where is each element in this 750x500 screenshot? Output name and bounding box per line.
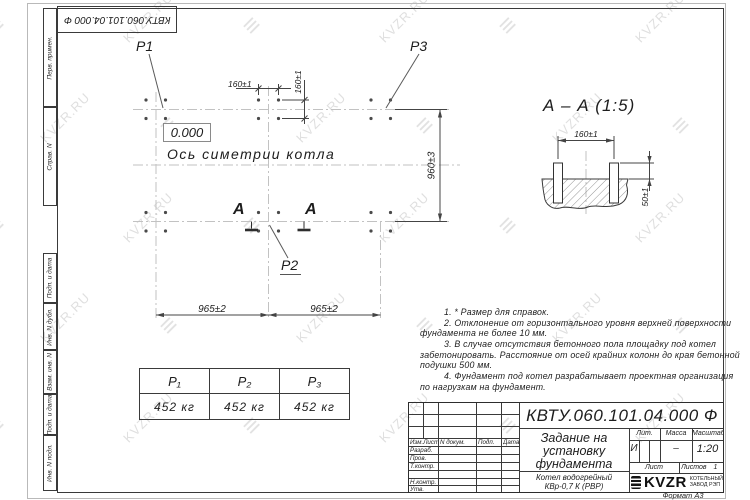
note-line: забетонировать. Расстояние от осей крайн… bbox=[420, 350, 750, 361]
format-label: Формат А3 bbox=[633, 491, 733, 500]
title-block: КВТУ.060.101.04.000 Ф Задание на установ… bbox=[408, 402, 724, 493]
section-letter-left: А bbox=[233, 201, 245, 219]
title-block-row-utv: Утв. bbox=[410, 486, 438, 493]
drawing-sheet-screenshot: ≡KVZR.RU≡KVZR.RU≡KVZR.RUKVZR.RU≡KVZR.RU≡… bbox=[0, 0, 750, 500]
title-block-row-nkontr: Н.контр. bbox=[410, 479, 438, 486]
load-table-value: 452 кг bbox=[279, 393, 350, 420]
title-block-listov-value: 1 bbox=[709, 464, 722, 473]
load-table-header: P₃ bbox=[279, 368, 350, 394]
title-block-lit-label: Лит. bbox=[629, 430, 660, 439]
load-table-value: 452 кг bbox=[209, 393, 280, 420]
note-line: 2. Отклонение от горизонтального уровня … bbox=[420, 318, 750, 329]
note-line: 1. * Размер для справок. bbox=[420, 307, 750, 318]
title-block-list-label: Лист bbox=[629, 464, 679, 473]
point-label-p2: P2 bbox=[280, 257, 301, 275]
anchor-bolt-left bbox=[554, 163, 563, 203]
title-block-product-line2: КВр-0,7 К (РВР) bbox=[521, 482, 627, 491]
dim-965-right: 965±2 bbox=[294, 304, 354, 315]
load-table-header: P₁ bbox=[139, 368, 210, 394]
section-dim-160: 160±1 bbox=[562, 129, 610, 139]
note-line: фундамента не более 10 мм. bbox=[420, 328, 750, 339]
elevation-mark: 0.000 bbox=[163, 123, 211, 142]
load-table-value: 452 кг bbox=[139, 393, 210, 420]
note-line: 4. Фундамент под котел разрабатывает про… bbox=[420, 371, 750, 382]
title-block-col-izm: Изм.Лист bbox=[410, 439, 438, 446]
title-block-row-razrab: Разраб. bbox=[410, 447, 438, 454]
anchor-bolt-right bbox=[610, 163, 619, 203]
title-block-scale-label: Масштаб bbox=[692, 430, 723, 439]
title-block-listov-label: Листов bbox=[681, 464, 709, 473]
title-block-doc-number: КВТУ.060.101.04.000 Ф bbox=[521, 403, 723, 428]
kvzr-logo-sub2: ЗАВОД РЭП bbox=[690, 483, 723, 489]
notes-block: 1. * Размер для справок. 2. Отклонение о… bbox=[420, 307, 750, 393]
title-block-col-data: Дата bbox=[503, 439, 519, 446]
note-line: по нагрузкам на фундамент. bbox=[420, 382, 750, 393]
load-table-header: P₂ bbox=[209, 368, 280, 394]
title-block-logo: KVZR КОТЕЛЬНЫЙ ЗАВОД РЭП bbox=[631, 473, 723, 492]
title-block-col-dokum: N докум. bbox=[440, 439, 476, 446]
section-view-geometry bbox=[542, 136, 654, 208]
load-table: P₁ P₂ P₃ 452 кг 452 кг 452 кг bbox=[139, 368, 350, 420]
title-block-row-prov: Пров. bbox=[410, 455, 438, 462]
note-line: подушки 500 мм. bbox=[420, 360, 750, 371]
title-block-mass-label: Масса bbox=[660, 430, 692, 439]
plan-dimensions bbox=[156, 80, 447, 317]
title-block-title-line2: установку bbox=[521, 444, 627, 457]
section-letter-right: А bbox=[305, 201, 317, 219]
section-view-title: А – А (1:5) bbox=[543, 96, 635, 116]
title-block-title-line3: фундамента bbox=[521, 457, 627, 470]
dim-965-left: 965±2 bbox=[182, 304, 242, 315]
title-block-product-line1: Котел водогрейный bbox=[521, 473, 627, 482]
kvzr-logo-text: KVZR bbox=[644, 474, 687, 491]
section-cut-marks bbox=[245, 222, 311, 231]
title-block-lit-value: И bbox=[629, 443, 639, 461]
title-block-scale-value: 1:20 bbox=[692, 443, 723, 461]
point-label-p1: P1 bbox=[136, 38, 153, 54]
plan-centerlines bbox=[133, 86, 586, 318]
section-dim-50: 50±1 bbox=[640, 171, 650, 223]
title-block-title-line1: Задание на bbox=[521, 431, 627, 444]
point-label-p3: P3 bbox=[410, 38, 427, 54]
kvzr-logo-icon bbox=[631, 476, 641, 489]
dim-960: 960±3 bbox=[427, 140, 438, 192]
title-block-mass-value: – bbox=[660, 443, 692, 461]
note-line: 3. В случае отсутствия бетонного пола пл… bbox=[420, 339, 750, 350]
dim-160-side: 160±1 bbox=[293, 57, 303, 107]
axis-label: Ось симетрии котла bbox=[167, 146, 335, 162]
title-block-row-tkontr: Т.контр. bbox=[410, 463, 438, 470]
dim-160-top: 160±1 bbox=[228, 79, 252, 89]
title-block-col-podp: Подп. bbox=[478, 439, 501, 446]
